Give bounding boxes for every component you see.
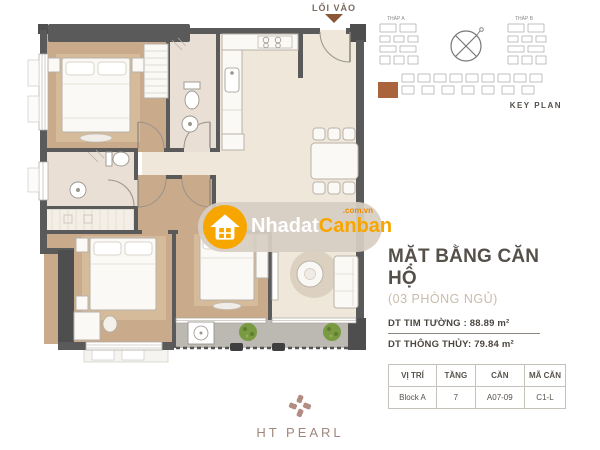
floor-plan — [26, 12, 376, 372]
plan-title: MẶT BẰNG CĂN HỘ — [388, 246, 566, 290]
watermark-domain: .com.vn — [343, 206, 373, 215]
plan-subtitle: (03 PHÒNG NGỦ) — [388, 292, 566, 306]
desk-chair — [103, 316, 117, 332]
keyplan-unit-highlight — [378, 82, 398, 98]
sofa — [334, 256, 358, 308]
desk — [74, 312, 100, 340]
developer-brand: HT PEARL — [0, 394, 600, 440]
key-plan-label: KEY PLAN — [510, 101, 562, 110]
watermark: NhadatCanban .com.vn — [198, 202, 382, 252]
key-plan: THÁP A THÁP B KEY PLAN — [374, 12, 562, 110]
watermark-house-icon — [203, 205, 247, 249]
area-net: DT THÔNG THỦY: 79.84 m² — [388, 339, 566, 350]
col-position: VỊ TRÍ — [389, 365, 437, 387]
watermark-text: NhadatCanban — [251, 215, 392, 238]
tower-a-label: THÁP A — [387, 15, 405, 22]
compass-icon — [451, 28, 483, 61]
dining-table — [311, 143, 358, 179]
tv-console — [272, 252, 278, 300]
area-gross: DT TIM TƯỜNG : 88.89 m² — [388, 318, 540, 334]
unit-info-panel: MẶT BẰNG CĂN HỘ (03 PHÒNG NGỦ) DT TIM TƯ… — [388, 246, 566, 409]
col-unit: CĂN — [475, 365, 524, 387]
dining-set — [311, 128, 358, 194]
col-code: MÃ CĂN — [524, 365, 565, 387]
fridge — [222, 134, 244, 150]
unit-table-header-row: VỊ TRÍ TẦNG CĂN MÃ CĂN — [389, 365, 566, 387]
col-floor: TẦNG — [437, 365, 476, 387]
floor-plan-page: LỐI VÀO — [0, 0, 600, 450]
plant-icon — [323, 323, 341, 341]
bedroom-1-wardrobe — [144, 44, 168, 98]
pearl-rosette-icon — [288, 394, 312, 418]
closet — [44, 209, 134, 231]
plant-icon — [239, 323, 257, 341]
bedroom-1 — [48, 58, 144, 142]
brand-name: HT PEARL — [0, 425, 600, 440]
tower-b-label: THÁP B — [515, 15, 534, 22]
